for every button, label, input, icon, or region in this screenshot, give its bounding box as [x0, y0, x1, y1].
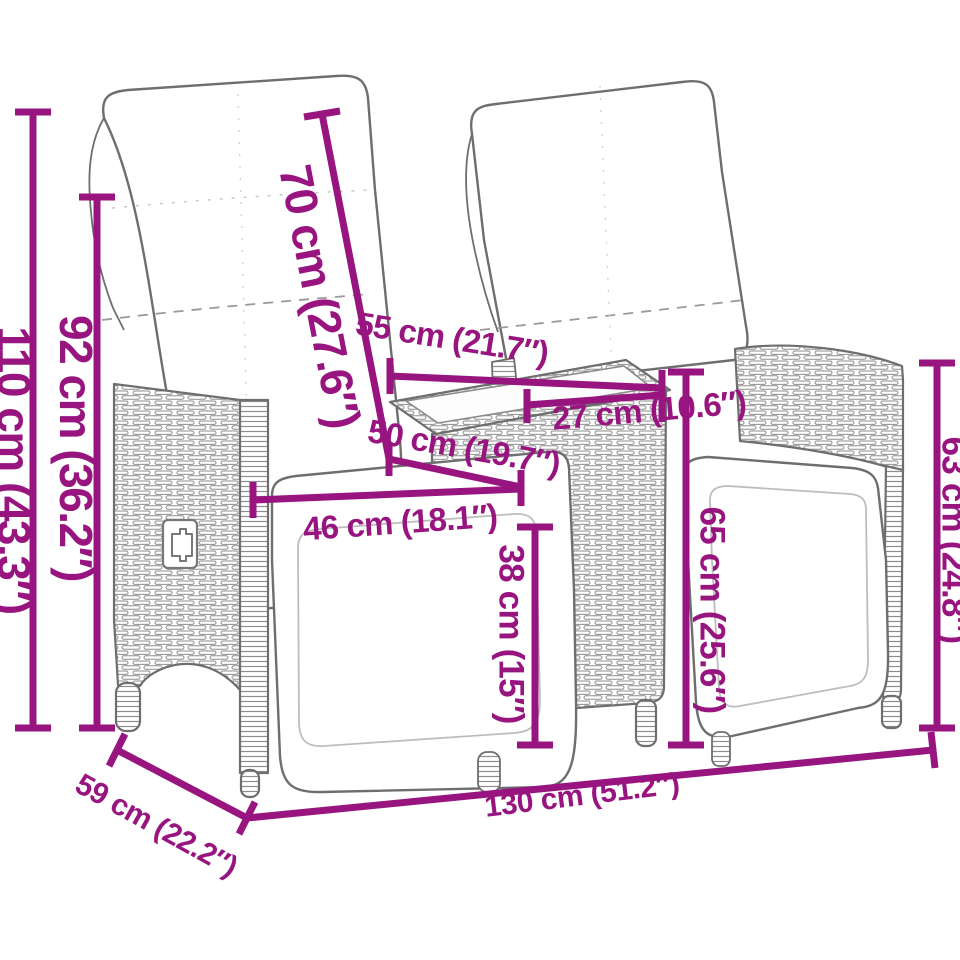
dim-label-armrest-63: 63 cm (24.8″)	[937, 437, 960, 644]
foot-left-front	[478, 752, 500, 792]
dim-label-seat-height-38: 38 cm (15″)	[494, 544, 529, 723]
dimension-diagram: 110 cm (43.3″) 92 cm (36.2″) 70 cm (27.6…	[0, 0, 960, 960]
dim-label-backrest-92: 92 cm (36.2″)	[53, 315, 99, 581]
foot-right-front	[712, 732, 730, 766]
dim-label-table-height-65: 65 cm (25.6″)	[695, 507, 730, 714]
armrest-panel-left	[114, 384, 268, 797]
dim-label-total-height: 110 cm (43.3″)	[0, 326, 37, 613]
